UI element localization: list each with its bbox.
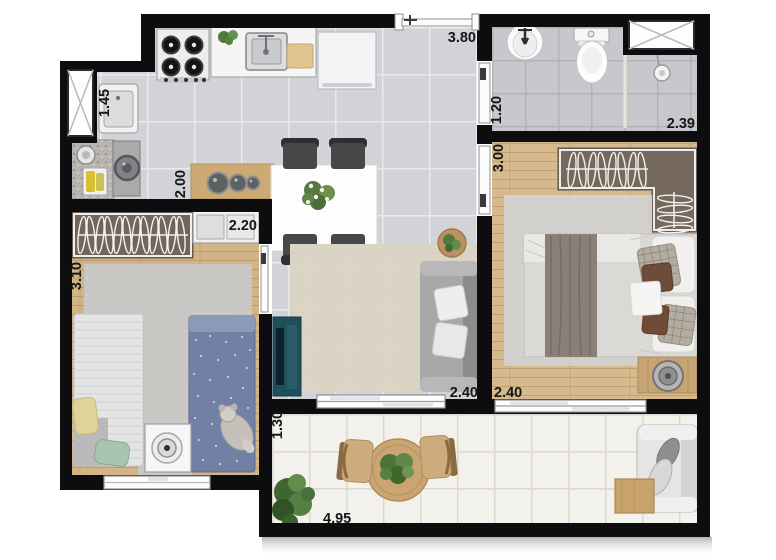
- svg-text:2.40: 2.40: [450, 385, 478, 401]
- svg-text:2.00: 2.00: [173, 170, 189, 198]
- svg-text:3.10: 3.10: [69, 262, 85, 290]
- svg-text:2.39: 2.39: [667, 116, 695, 132]
- svg-text:1.30: 1.30: [270, 411, 286, 439]
- svg-text:2.40: 2.40: [494, 385, 522, 401]
- svg-text:4.95: 4.95: [323, 511, 351, 527]
- svg-text:3.80: 3.80: [448, 30, 476, 46]
- svg-text:1.20: 1.20: [489, 96, 505, 124]
- svg-text:2.20: 2.20: [229, 218, 257, 234]
- svg-text:3.00: 3.00: [491, 144, 507, 172]
- svg-text:1.45: 1.45: [97, 89, 113, 117]
